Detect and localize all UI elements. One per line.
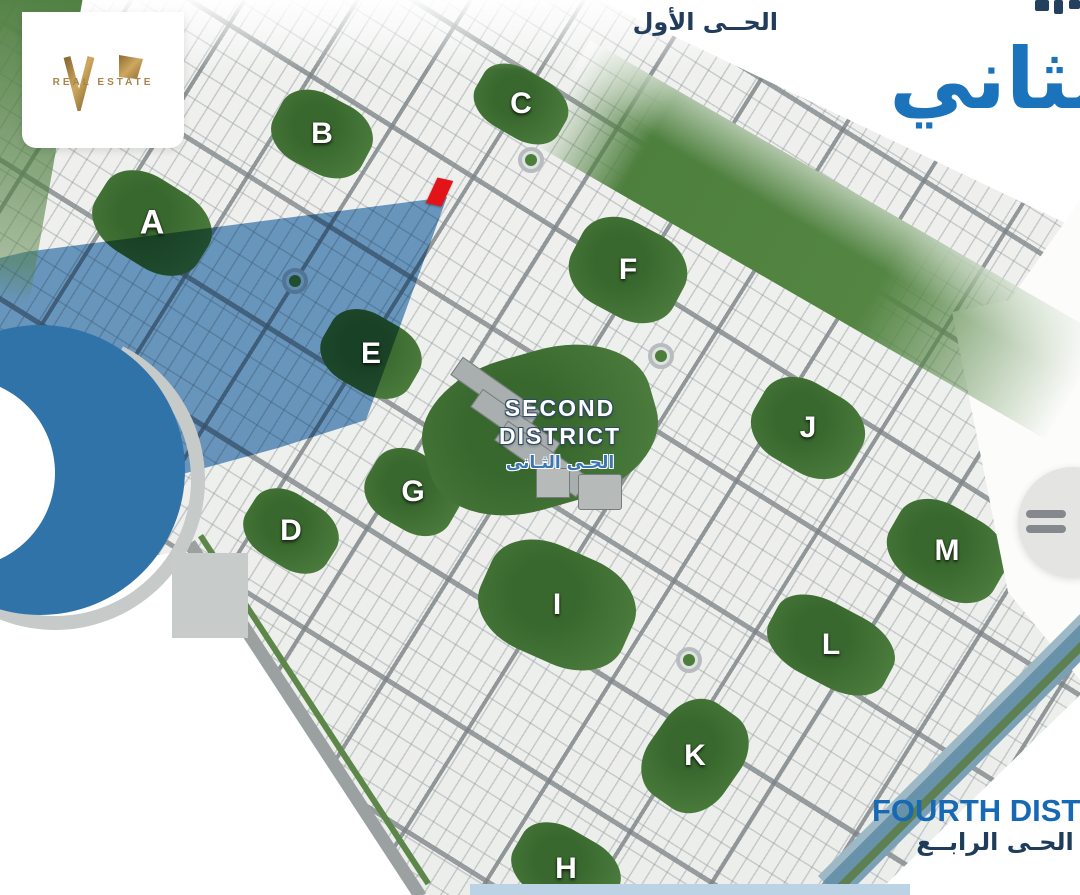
district-letter-g: G: [401, 475, 424, 509]
district-letter-j: J: [800, 411, 817, 445]
first-district-label: الحــى الأول: [648, 8, 778, 36]
clipped-text-fragment: [1069, 0, 1080, 9]
logo-subtitle: REAL ESTATE: [53, 77, 154, 88]
clipped-text-fragment: [1054, 0, 1063, 14]
roundabout: [648, 343, 674, 369]
district-letter-e: E: [361, 337, 381, 371]
district-letter-i: I: [553, 588, 561, 622]
fourth-district-arabic-label: الحـى الرابــع: [905, 828, 1080, 856]
double-bar-menu-icon: [1026, 510, 1066, 518]
district-letter-h: H: [555, 852, 577, 886]
water-strip-bottom: [470, 884, 910, 895]
second-district-big-label: الثاني: [872, 30, 1080, 128]
center-title-line1: SECOND: [505, 395, 615, 422]
district-letter-f: F: [619, 253, 637, 287]
district-letter-b: B: [311, 117, 333, 151]
watermark-gray-shape: [172, 553, 248, 638]
clipped-text-fragment: [1035, 0, 1049, 11]
mosque-building: [578, 474, 622, 510]
district-letter-a: A: [140, 204, 165, 243]
roundabout: [676, 647, 702, 673]
masterplan-image: A B C D E F G H I J K L M SECOND DISTRIC…: [0, 0, 1080, 895]
roundabout: [518, 147, 544, 173]
district-letter-k: K: [684, 739, 706, 773]
district-letter-c: C: [510, 87, 532, 121]
fourth-district-label: FOURTH DISTRICT: [872, 793, 1080, 831]
vip-real-estate-logo: REAL ESTATE: [22, 12, 184, 148]
center-title-arabic: الحـى الثـانى: [506, 453, 614, 473]
center-title-line2: DISTRICT: [499, 423, 621, 450]
double-bar-menu-icon: [1026, 525, 1066, 533]
district-letter-m: M: [935, 534, 960, 568]
district-letter-d: D: [280, 514, 302, 548]
district-letter-l: L: [822, 628, 840, 662]
